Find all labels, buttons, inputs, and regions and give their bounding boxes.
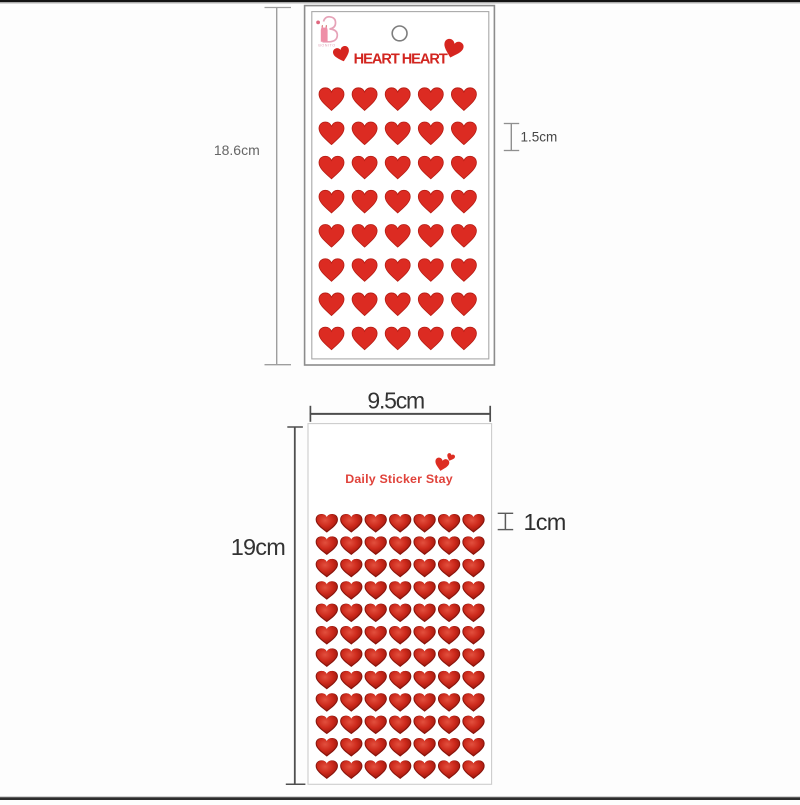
svg-text:Daily Sticker Stay: Daily Sticker Stay bbox=[345, 472, 453, 486]
svg-text:9.5cm: 9.5cm bbox=[367, 387, 424, 413]
svg-text:HEART HEART: HEART HEART bbox=[354, 51, 448, 67]
svg-text:1.5cm: 1.5cm bbox=[521, 129, 558, 144]
svg-text:18.6cm: 18.6cm bbox=[214, 142, 260, 158]
svg-text:1cm: 1cm bbox=[524, 509, 566, 535]
svg-text:19cm: 19cm bbox=[231, 534, 285, 560]
svg-text:BONITO: BONITO bbox=[318, 43, 335, 47]
